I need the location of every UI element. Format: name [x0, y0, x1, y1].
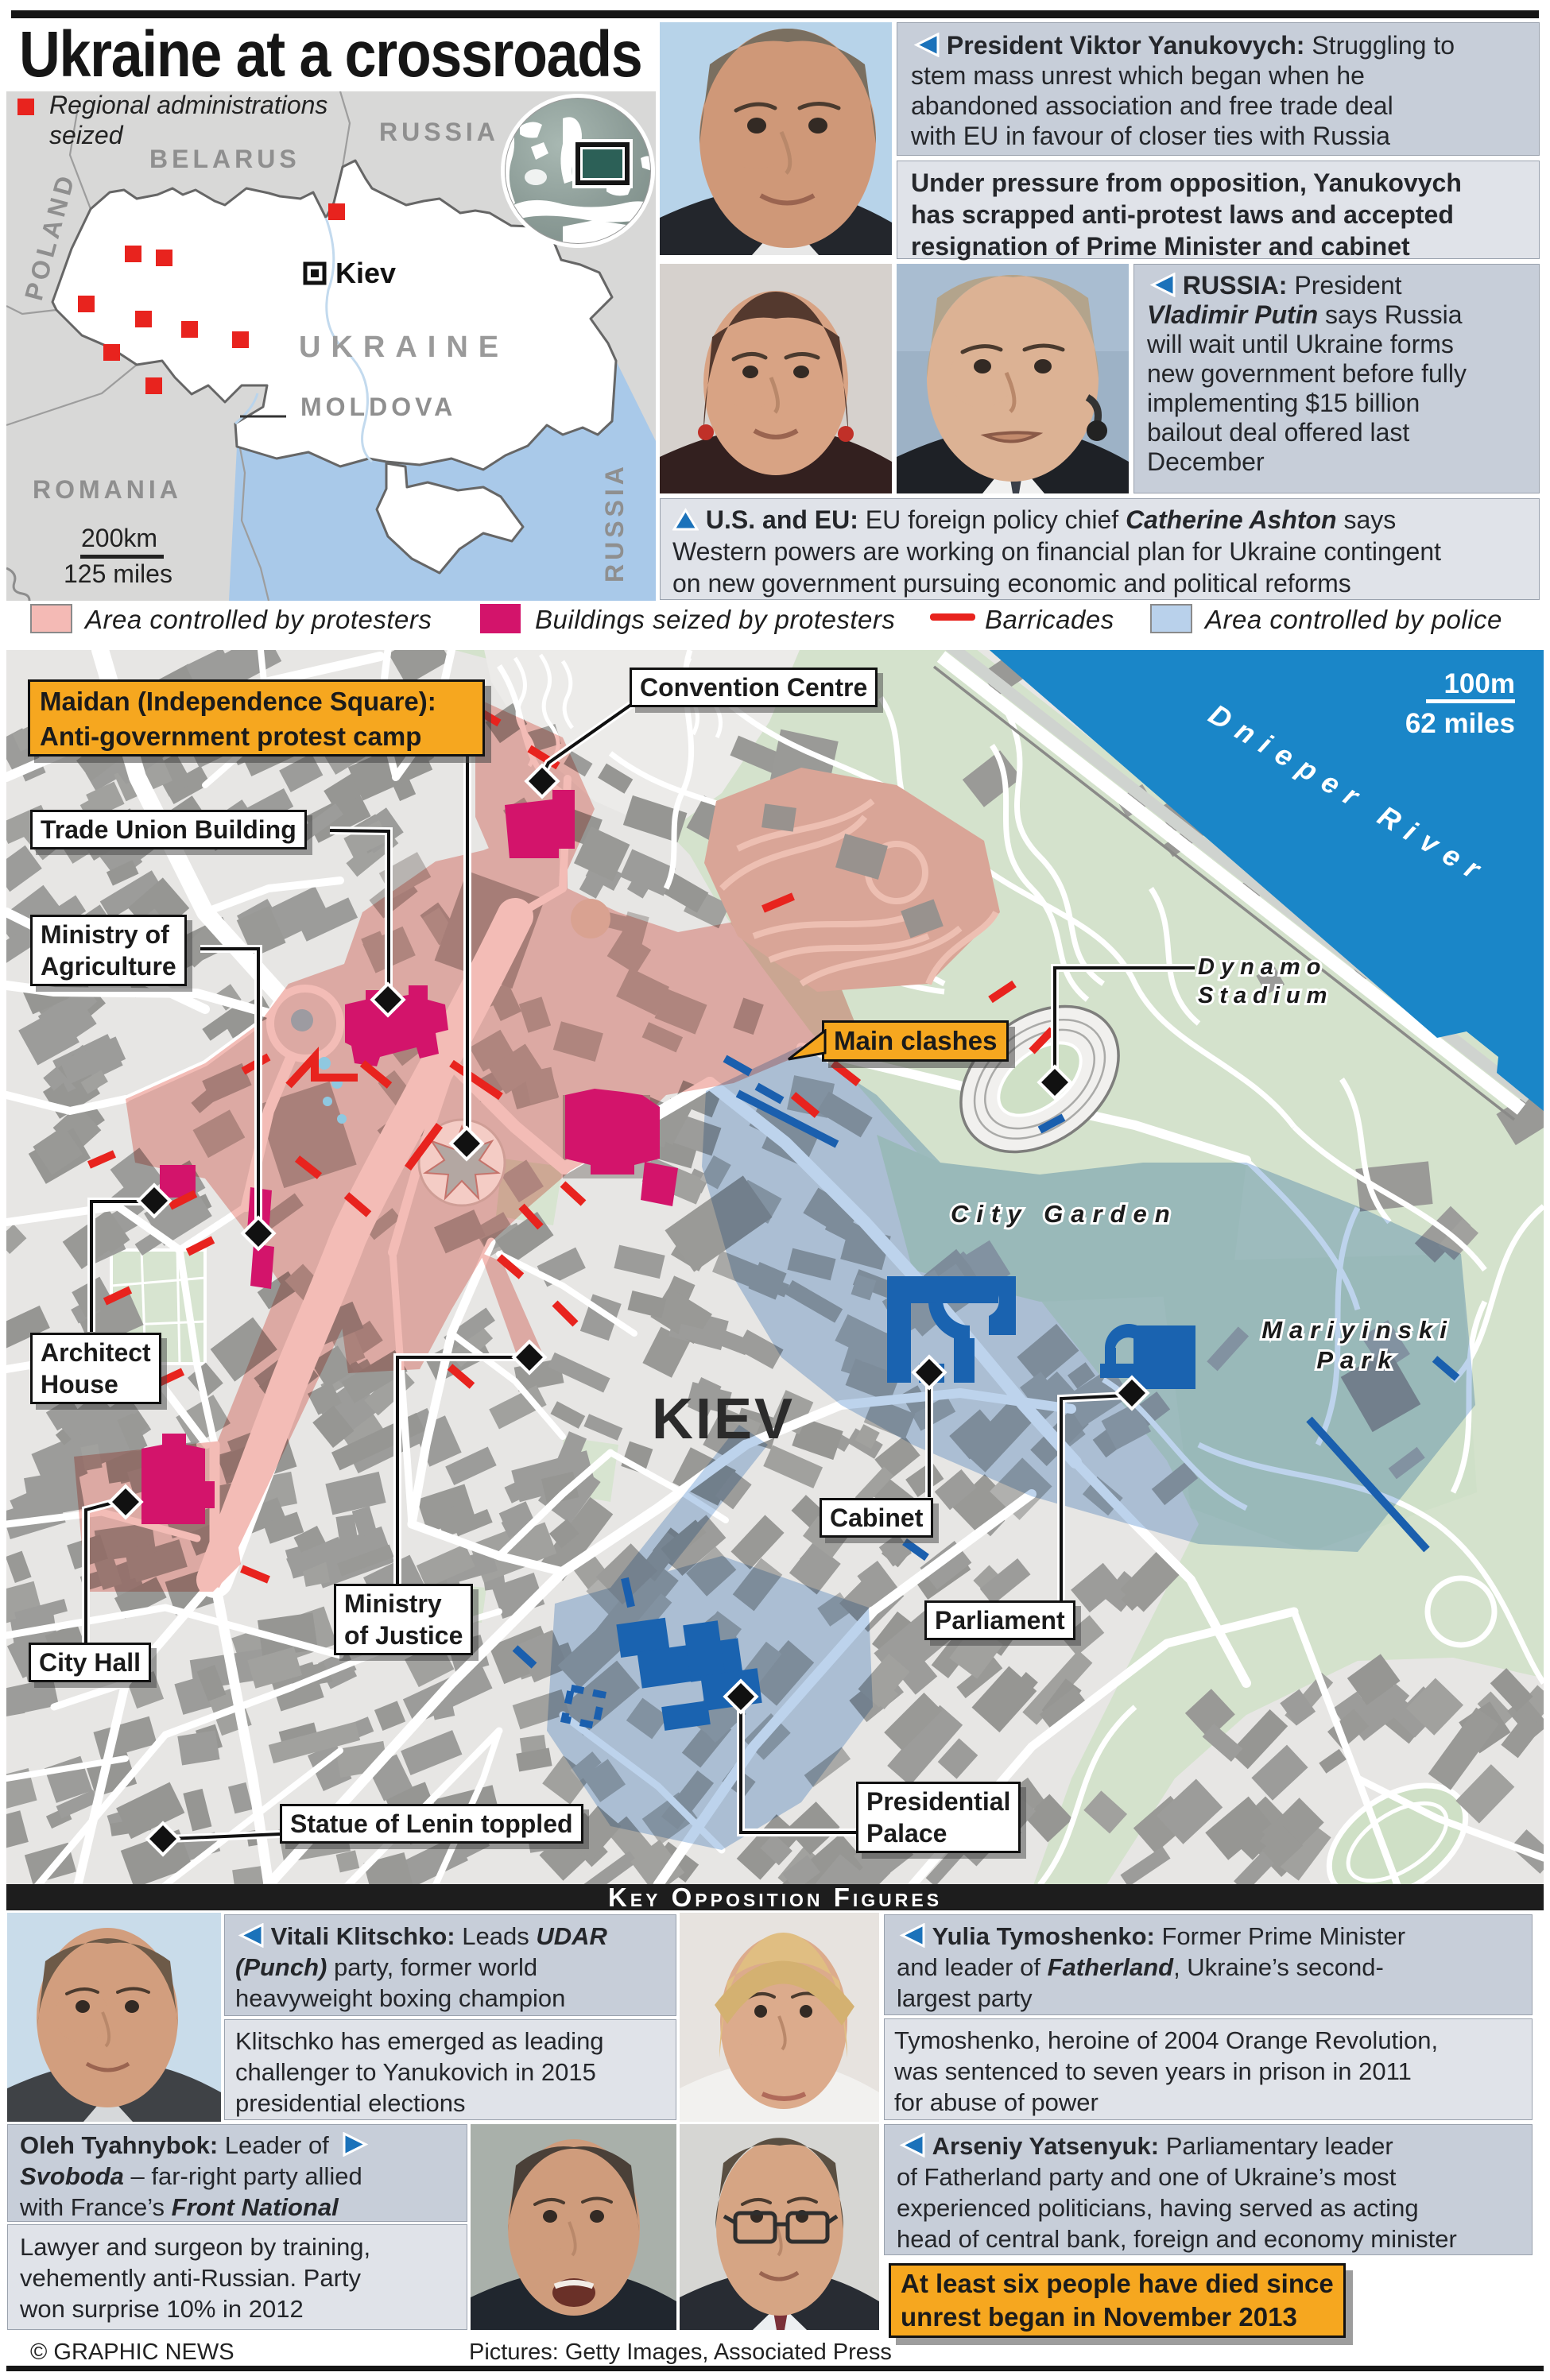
- svg-text:seized: seized: [49, 121, 124, 149]
- svg-text:MOLDOVA: MOLDOVA: [300, 393, 456, 421]
- svg-text:Dynamo: Dynamo: [1198, 954, 1327, 980]
- svg-text:KIEV: KIEV: [652, 1387, 795, 1451]
- svg-text:62 miles: 62 miles: [1405, 708, 1515, 739]
- svg-text:RUSSIA: RUSSIA: [379, 118, 499, 146]
- svg-text:100m: 100m: [1443, 668, 1515, 699]
- svg-text:RUSSIA: RUSSIA: [600, 462, 629, 582]
- svg-text:ROMANIA: ROMANIA: [33, 475, 182, 504]
- svg-text:Park: Park: [1316, 1346, 1398, 1374]
- svg-text:200km: 200km: [81, 524, 157, 552]
- svg-text:125 miles: 125 miles: [64, 559, 172, 588]
- svg-text:Stadium: Stadium: [1198, 983, 1333, 1008]
- svg-text:Mariyinski: Mariyinski: [1261, 1316, 1454, 1344]
- svg-text:BELARUS: BELARUS: [149, 145, 300, 173]
- svg-text:UKRAINE: UKRAINE: [299, 331, 509, 364]
- svg-text:Regional administrations: Regional administrations: [49, 91, 327, 119]
- svg-text:Kiev: Kiev: [335, 257, 396, 289]
- svg-text:City Garden: City Garden: [951, 1200, 1178, 1228]
